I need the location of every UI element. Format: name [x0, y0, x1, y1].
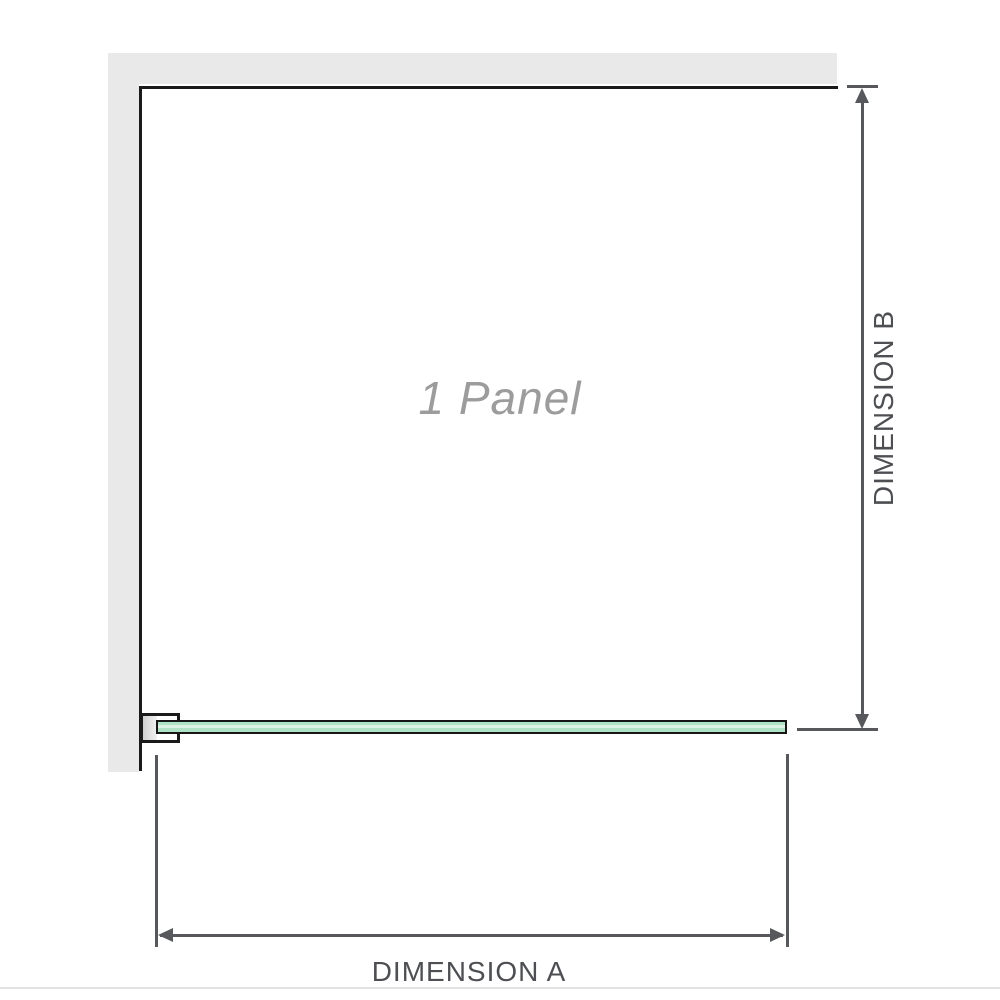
dimension-b-arrow-up-icon: [855, 88, 869, 103]
dimension-a-label: DIMENSION A: [372, 956, 567, 988]
wall-left-bar: [108, 53, 139, 772]
dimension-b-label: DIMENSION B: [868, 310, 900, 506]
dimension-b-line: [861, 96, 864, 723]
dimension-a-line: [160, 934, 783, 937]
panel-count-label: 1 Panel: [418, 371, 581, 425]
bottom-divider-line: [0, 987, 1000, 989]
wall-edge-left-line: [139, 86, 142, 771]
wall-top-bar: [108, 53, 837, 84]
glass-panel: [156, 720, 787, 734]
panel-dimension-diagram: 1 Panel DIMENSION B DIMENSION A: [0, 0, 1000, 1000]
wall-edge-top-line: [139, 86, 838, 89]
dimension-b-arrow-down-icon: [855, 714, 869, 729]
dimension-a-arrow-right-icon: [770, 928, 785, 942]
glass-panel-highlight: [158, 725, 785, 728]
dimension-a-left-extension-line: [155, 755, 158, 947]
dimension-a-arrow-left-icon: [158, 928, 173, 942]
dimension-a-right-extension-line: [786, 754, 789, 947]
bracket-pad: [143, 716, 157, 740]
